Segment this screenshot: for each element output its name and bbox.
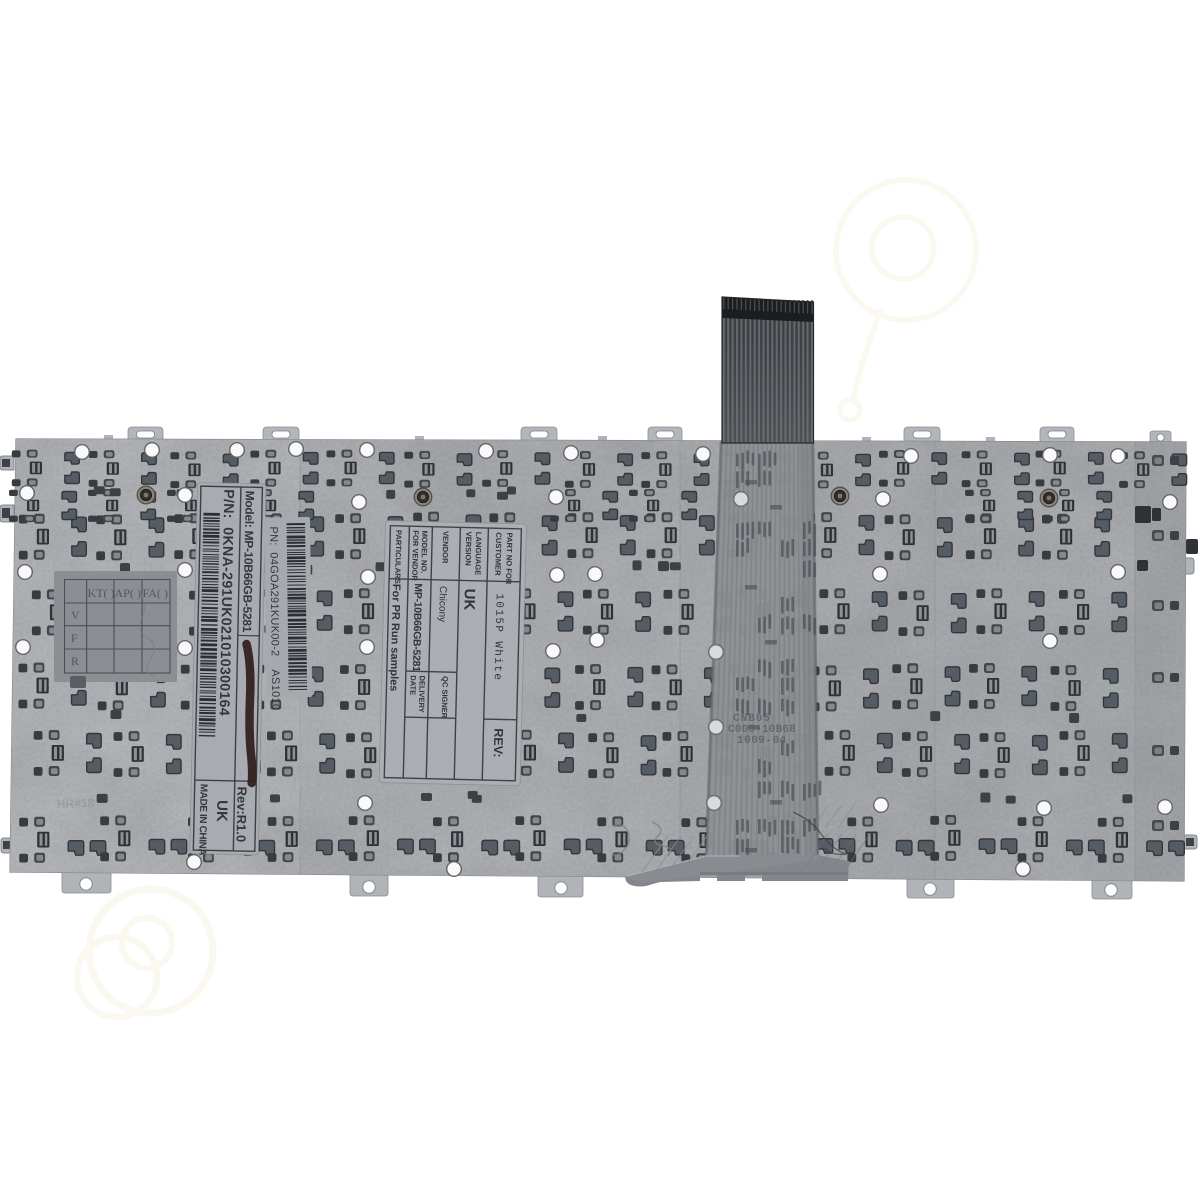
svg-text:HR#18: HR#18 xyxy=(57,796,95,811)
svg-text:LANGUAGE: LANGUAGE xyxy=(473,532,483,576)
svg-text:MADE IN CHINA: MADE IN CHINA xyxy=(196,784,208,856)
svg-text:QC SIGNER: QC SIGNER xyxy=(440,676,450,719)
svg-text:DATE: DATE xyxy=(408,675,417,695)
svg-text:MP-10B66GB-5281: MP-10B66GB-5281 xyxy=(410,583,424,672)
svg-text:Rev:R1.0: Rev:R1.0 xyxy=(233,786,249,842)
svg-text:FOR VENDOR: FOR VENDOR xyxy=(410,530,420,581)
svg-text:UK: UK xyxy=(460,588,478,610)
svg-text:KT( ): KT( ) xyxy=(88,586,115,600)
svg-text:1015P White: 1015P White xyxy=(491,593,505,681)
svg-text:F: F xyxy=(71,631,78,645)
svg-text:VENDOR: VENDOR xyxy=(440,531,450,564)
svg-text:R: R xyxy=(71,654,79,668)
svg-text:PN: 04GOA291KUK00-2 AS1010: PN: 04GOA291KUK00-2 AS1010 xyxy=(267,526,281,710)
svg-text:PART NO FOR: PART NO FOR xyxy=(504,532,514,584)
svg-text:Model: MP-10B66GB-5281: Model: MP-10B66GB-5281 xyxy=(240,491,257,633)
svg-text:Chicony: Chicony xyxy=(436,586,448,622)
svg-text:REV:: REV: xyxy=(491,728,506,758)
svg-text:VERSION: VERSION xyxy=(463,531,473,565)
svg-text:CUSTOMER: CUSTOMER xyxy=(493,532,503,576)
svg-text:AP( ): AP( ) xyxy=(115,586,141,600)
svg-text:UK: UK xyxy=(213,800,230,822)
svg-text:V: V xyxy=(71,608,80,622)
svg-text:PARTICULARS: PARTICULARS xyxy=(393,530,403,584)
svg-text:1009-04: 1009-04 xyxy=(737,735,787,747)
svg-text:FA( ): FA( ) xyxy=(143,586,168,600)
